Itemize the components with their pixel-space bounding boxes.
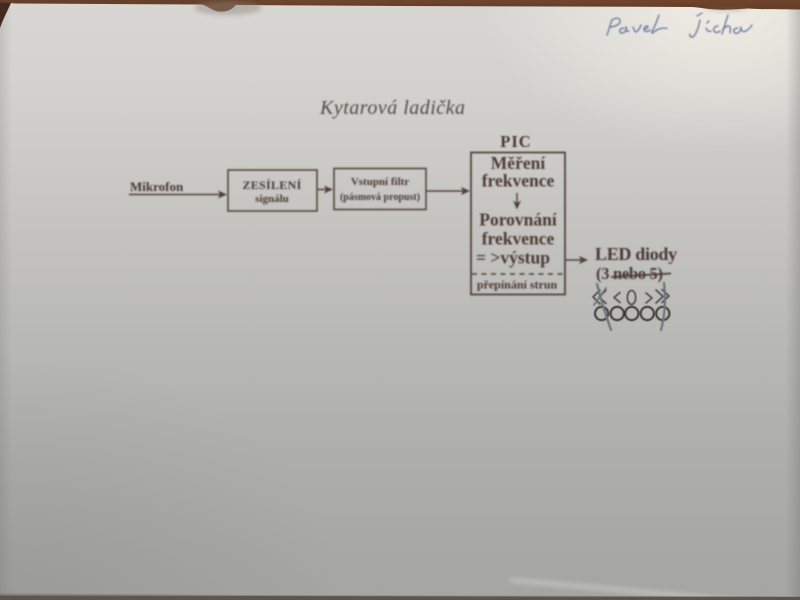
svg-text:ZESÍLENÍ: ZESÍLENÍ <box>242 178 301 192</box>
svg-text:= >výstup: = >výstup <box>476 248 550 268</box>
svg-text:LED diody: LED diody <box>595 244 677 264</box>
svg-text:frekvence: frekvence <box>482 171 555 191</box>
svg-text:Mikrofon: Mikrofon <box>130 179 184 194</box>
svg-text:signálu: signálu <box>255 193 289 205</box>
svg-text:(3 nebo 5): (3 nebo 5) <box>596 264 663 283</box>
svg-text:přepínání strun: přepínání strun <box>477 278 558 292</box>
svg-text:PIC: PIC <box>500 132 531 151</box>
svg-text:frekvence: frekvence <box>482 229 555 249</box>
svg-text:Porovnání: Porovnání <box>479 210 558 230</box>
svg-text:Vstupní filtr: Vstupní filtr <box>351 176 409 188</box>
svg-text:(pásmová propust): (pásmová propust) <box>340 192 420 203</box>
svg-text:Kytarová ladička: Kytarová ladička <box>319 97 466 119</box>
